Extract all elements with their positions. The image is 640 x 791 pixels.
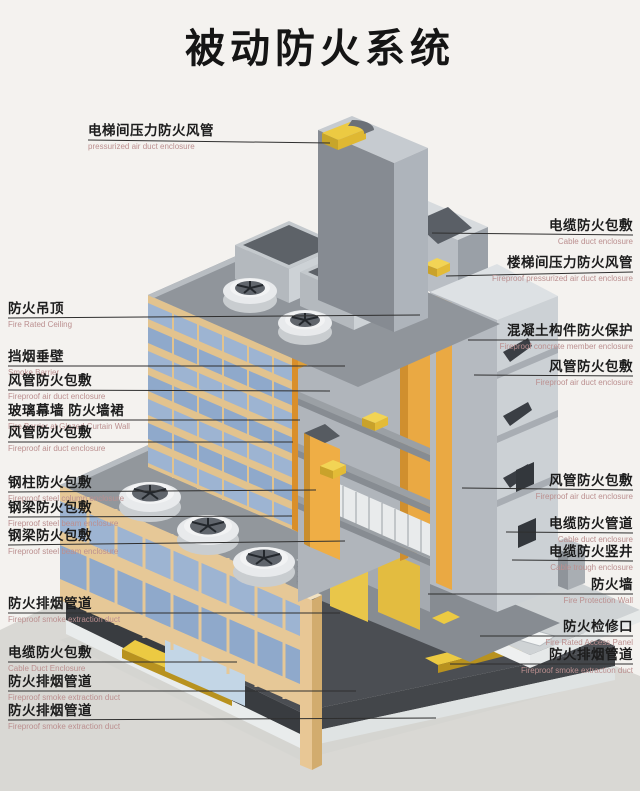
callout-steel-beam-enclosure-1: 钢梁防火包敷 Fireproof steel beam enclosure [8, 500, 118, 528]
callout-smoke-duct-r: 防火排烟管道 Fireproof smoke extraction duct [521, 647, 633, 675]
callout-duct-enclosure-1: 风管防火包敷 Fireproof air duct enclosure [8, 373, 105, 401]
callout-cable-duct-r1: 电缆防火包敷 Cable duct enclosure [549, 218, 633, 246]
callout-stair-pressurized-duct: 楼梯间压力防火风管 Fireproof pressurized air duct… [492, 255, 633, 283]
callout-access-panel: 防火检修口 Fire Rated Access Panel [545, 619, 633, 647]
callout-fire-rated-ceiling: 防火吊顶 Fire Rated Ceiling [8, 301, 72, 329]
callout-duct-enclosure-r2: 风管防火包敷 Fireproof air duct enclosure [536, 473, 633, 501]
callout-smoke-duct-3: 防火排烟管道 Fireproof smoke extraction duct [8, 703, 120, 731]
callout-steel-beam-enclosure-2: 钢梁防火包敷 Fireproof steel beam enclosure [8, 528, 118, 556]
callout-smoke-duct-2: 防火排烟管道 Fireproof smoke extraction duct [8, 674, 120, 702]
diagram-page: 被动防火系统 [0, 0, 640, 791]
callout-cable-shaft: 电缆防火竖井 Cable trough enclosure [549, 544, 633, 572]
callout-steel-column-enclosure: 钢柱防火包敷 Fireproof steel column enclosure [8, 475, 124, 503]
callout-concrete-member-protection: 混凝土构件防火保护 Fireproof concrete member encl… [500, 323, 633, 351]
callout-cable-duct-enclosure: 电缆防火包敷 Cable Duct Enclosure [8, 645, 92, 673]
callout-duct-enclosure-2: 风管防火包敷 Fireproof air duct enclosure [8, 425, 105, 453]
callout-elevator-pressurized-duct: 电梯间压力防火风管 pressurized air duct enclosure [88, 123, 214, 151]
callout-cable-fire-duct: 电缆防火管道 Cable duct enclosure [549, 516, 633, 544]
callout-duct-enclosure-r1: 风管防火包敷 Fireproof air duct enclosure [536, 359, 633, 387]
callout-fire-wall: 防火墙 Fire Protection Wall [564, 577, 634, 605]
callout-smoke-duct-1: 防火排烟管道 Fireproof smoke extraction duct [8, 596, 120, 624]
